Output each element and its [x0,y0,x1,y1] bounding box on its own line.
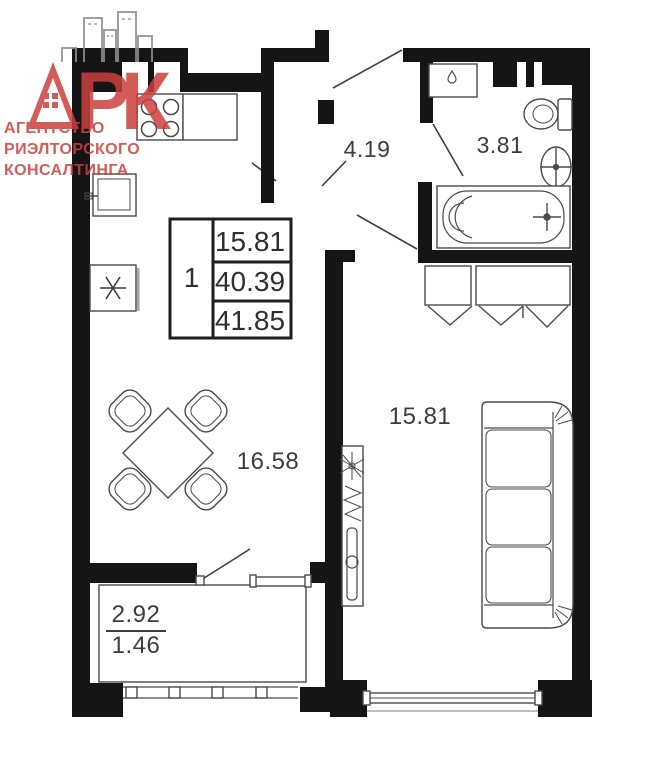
stove-icon [137,94,183,140]
room-area-label-hallway: 4.19 [336,136,398,163]
living-door-leaf [357,215,417,249]
balcony-area-counted-label: 1.46 [106,632,166,660]
stamp-living-area: 15.81 [213,226,287,258]
sofa-icon [482,402,573,628]
washing-machine-icon [429,64,477,97]
toilet-icon [524,99,572,130]
floor-plan-page: 4.19 3.81 16.58 15.81 2.92 1.46 1 15.81 … [0,0,661,765]
refrigerator-icon [90,265,138,311]
stamp-area-without-balcony: 40.39 [213,266,287,298]
room-area-label-bathroom: 3.81 [469,132,531,159]
kitchen-sink-icon [85,174,136,216]
wardrobe-icon [425,266,570,327]
balcony-door-leaf [201,549,250,580]
kitchen-opening-mark-right [322,161,346,186]
stamp-rooms-count: 1 [170,262,213,294]
room-area-label-kitchen-dining: 16.58 [230,448,306,476]
bathtub-icon [437,186,570,248]
balcony-area-full-label: 2.92 [106,601,166,632]
kitchen-counter [183,94,237,140]
living-room-window [363,691,542,711]
stamp-total-area: 41.85 [213,305,287,337]
wash-basin-icon [540,147,573,187]
tv-console [340,446,364,606]
entry-door-leaf [333,50,402,88]
room-area-label-living-room: 15.81 [384,403,456,431]
floor-plan-drawing [0,0,661,765]
bathroom-door-leaf [433,124,463,176]
